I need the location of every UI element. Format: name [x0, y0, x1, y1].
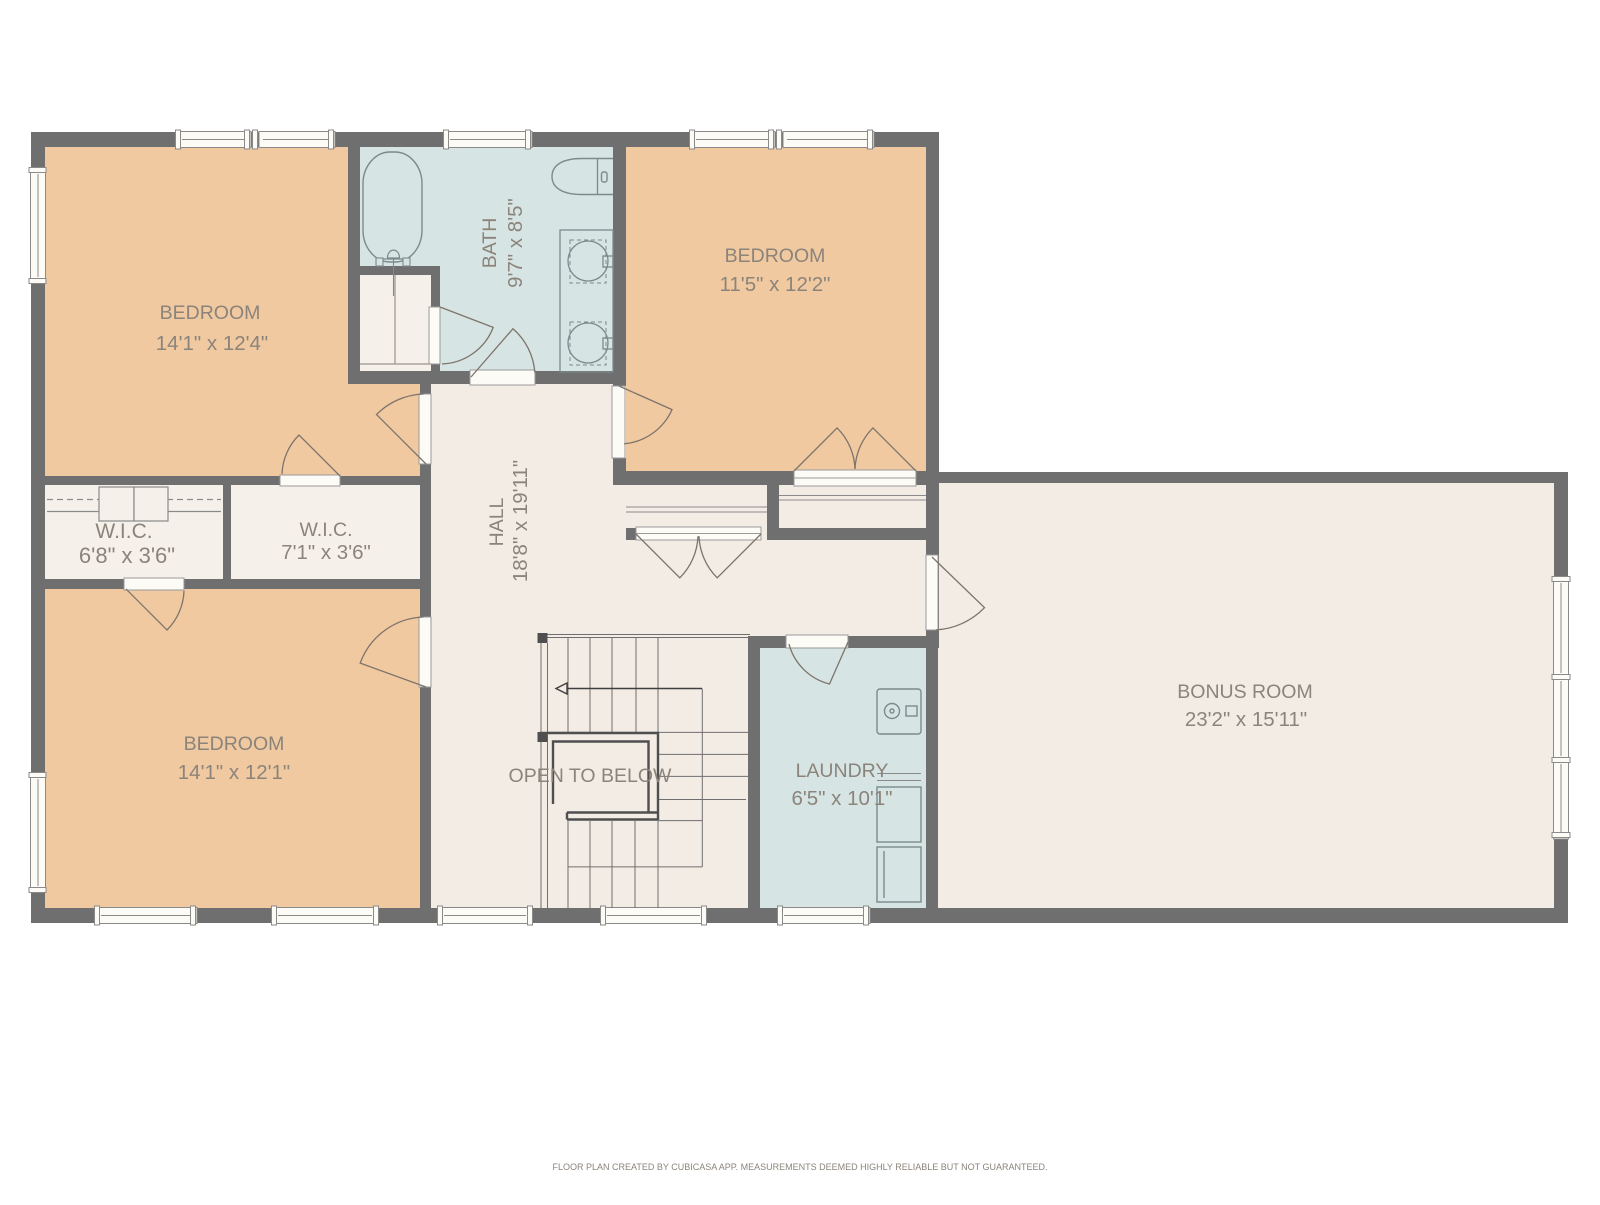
svg-text:FLOOR PLAN CREATED BY CUBICASA: FLOOR PLAN CREATED BY CUBICASA APP. MEAS…: [553, 1162, 1048, 1172]
svg-text:14'1" x 12'1": 14'1" x 12'1": [178, 761, 290, 784]
svg-text:BONUS ROOM: BONUS ROOM: [1177, 681, 1312, 703]
svg-text:18'8" x 19'11": 18'8" x 19'11": [509, 460, 532, 582]
svg-text:HALL: HALL: [486, 497, 508, 546]
svg-text:OPEN TO BELOW: OPEN TO BELOW: [509, 765, 672, 787]
svg-text:11'5" x 12'2": 11'5" x 12'2": [720, 273, 831, 296]
svg-text:BEDROOM: BEDROOM: [184, 733, 285, 755]
svg-text:BEDROOM: BEDROOM: [725, 245, 826, 267]
svg-text:LAUNDRY: LAUNDRY: [796, 760, 889, 782]
svg-text:BEDROOM: BEDROOM: [160, 302, 261, 324]
svg-text:W.I.C.: W.I.C.: [299, 519, 352, 541]
svg-text:7'1" x 3'6": 7'1" x 3'6": [281, 541, 371, 564]
svg-text:23'2" x 15'11": 23'2" x 15'11": [1185, 708, 1307, 731]
svg-text:9'7" x 8'5": 9'7" x 8'5": [504, 198, 527, 288]
svg-text:14'1" x 12'4": 14'1" x 12'4": [156, 332, 268, 355]
svg-text:6'5" x 10'1": 6'5" x 10'1": [791, 787, 892, 810]
svg-text:6'8" x 3'6": 6'8" x 3'6": [79, 543, 175, 568]
svg-text:BATH: BATH: [479, 218, 501, 269]
svg-text:W.I.C.: W.I.C.: [95, 520, 152, 543]
